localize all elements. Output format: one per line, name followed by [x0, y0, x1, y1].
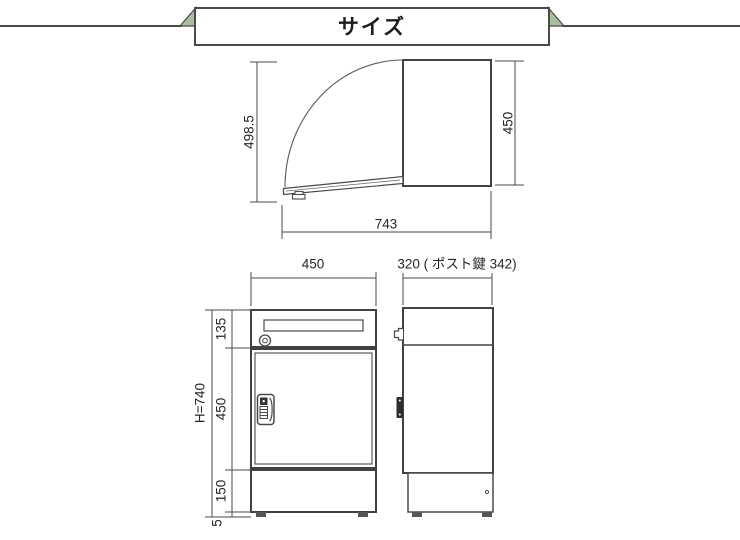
dim-front-heights: 135 450 150 5 H=740: [193, 310, 252, 527]
lid-open-side-view: 498.5 450 743: [242, 60, 525, 239]
side-base-section: [408, 473, 493, 512]
size-diagram-page: サイズ 498.5 450: [0, 0, 740, 540]
mail-slot: [264, 320, 363, 331]
dim-total-depth-label: 743: [375, 217, 398, 232]
dim-front-width-label: 450: [302, 257, 325, 272]
dim-lid-length: 498.5: [242, 62, 278, 202]
side-foot-right: [482, 512, 492, 517]
post-body-outline: [403, 60, 491, 186]
hinge-knob: [395, 329, 404, 341]
side-view: 320 ( ポスト鍵 342): [395, 257, 517, 518]
dim-foot-label: 5: [210, 519, 225, 527]
dim-body-height-label: 450: [501, 112, 516, 135]
ribbon-fold-right: [548, 8, 564, 27]
front-foot-left: [256, 512, 266, 517]
side-handle: [397, 397, 404, 418]
ribbon-fold-left: [180, 8, 196, 27]
dim-side-depth: 320 ( ポスト鍵 342): [397, 257, 516, 306]
dim-door-section-label: 450: [214, 398, 229, 421]
cylinder-lock-core: [263, 338, 268, 343]
dim-lid-length-label: 498.5: [242, 115, 257, 149]
title-ribbon: サイズ: [0, 8, 740, 46]
side-body-outline: [403, 308, 493, 473]
dim-total-depth: 743: [282, 191, 491, 239]
front-foot-right: [358, 512, 368, 517]
page-title: サイズ: [338, 15, 406, 39]
side-foot-left: [412, 512, 422, 517]
dial-lock-handle: [258, 395, 275, 425]
dim-top-section-label: 135: [214, 318, 229, 341]
dim-body-height: 450: [495, 61, 524, 185]
dim-base-section-label: 150: [214, 480, 229, 503]
dim-side-depth-label: 320 ( ポスト鍵 342): [397, 257, 516, 272]
front-base-section: [251, 470, 376, 512]
dim-front-width: 450: [251, 257, 376, 307]
dim-total-height-label: H=740: [193, 383, 208, 423]
lid-swing-arc: [285, 60, 403, 187]
front-view: 450 135 450 150 5 H=740: [193, 257, 377, 527]
